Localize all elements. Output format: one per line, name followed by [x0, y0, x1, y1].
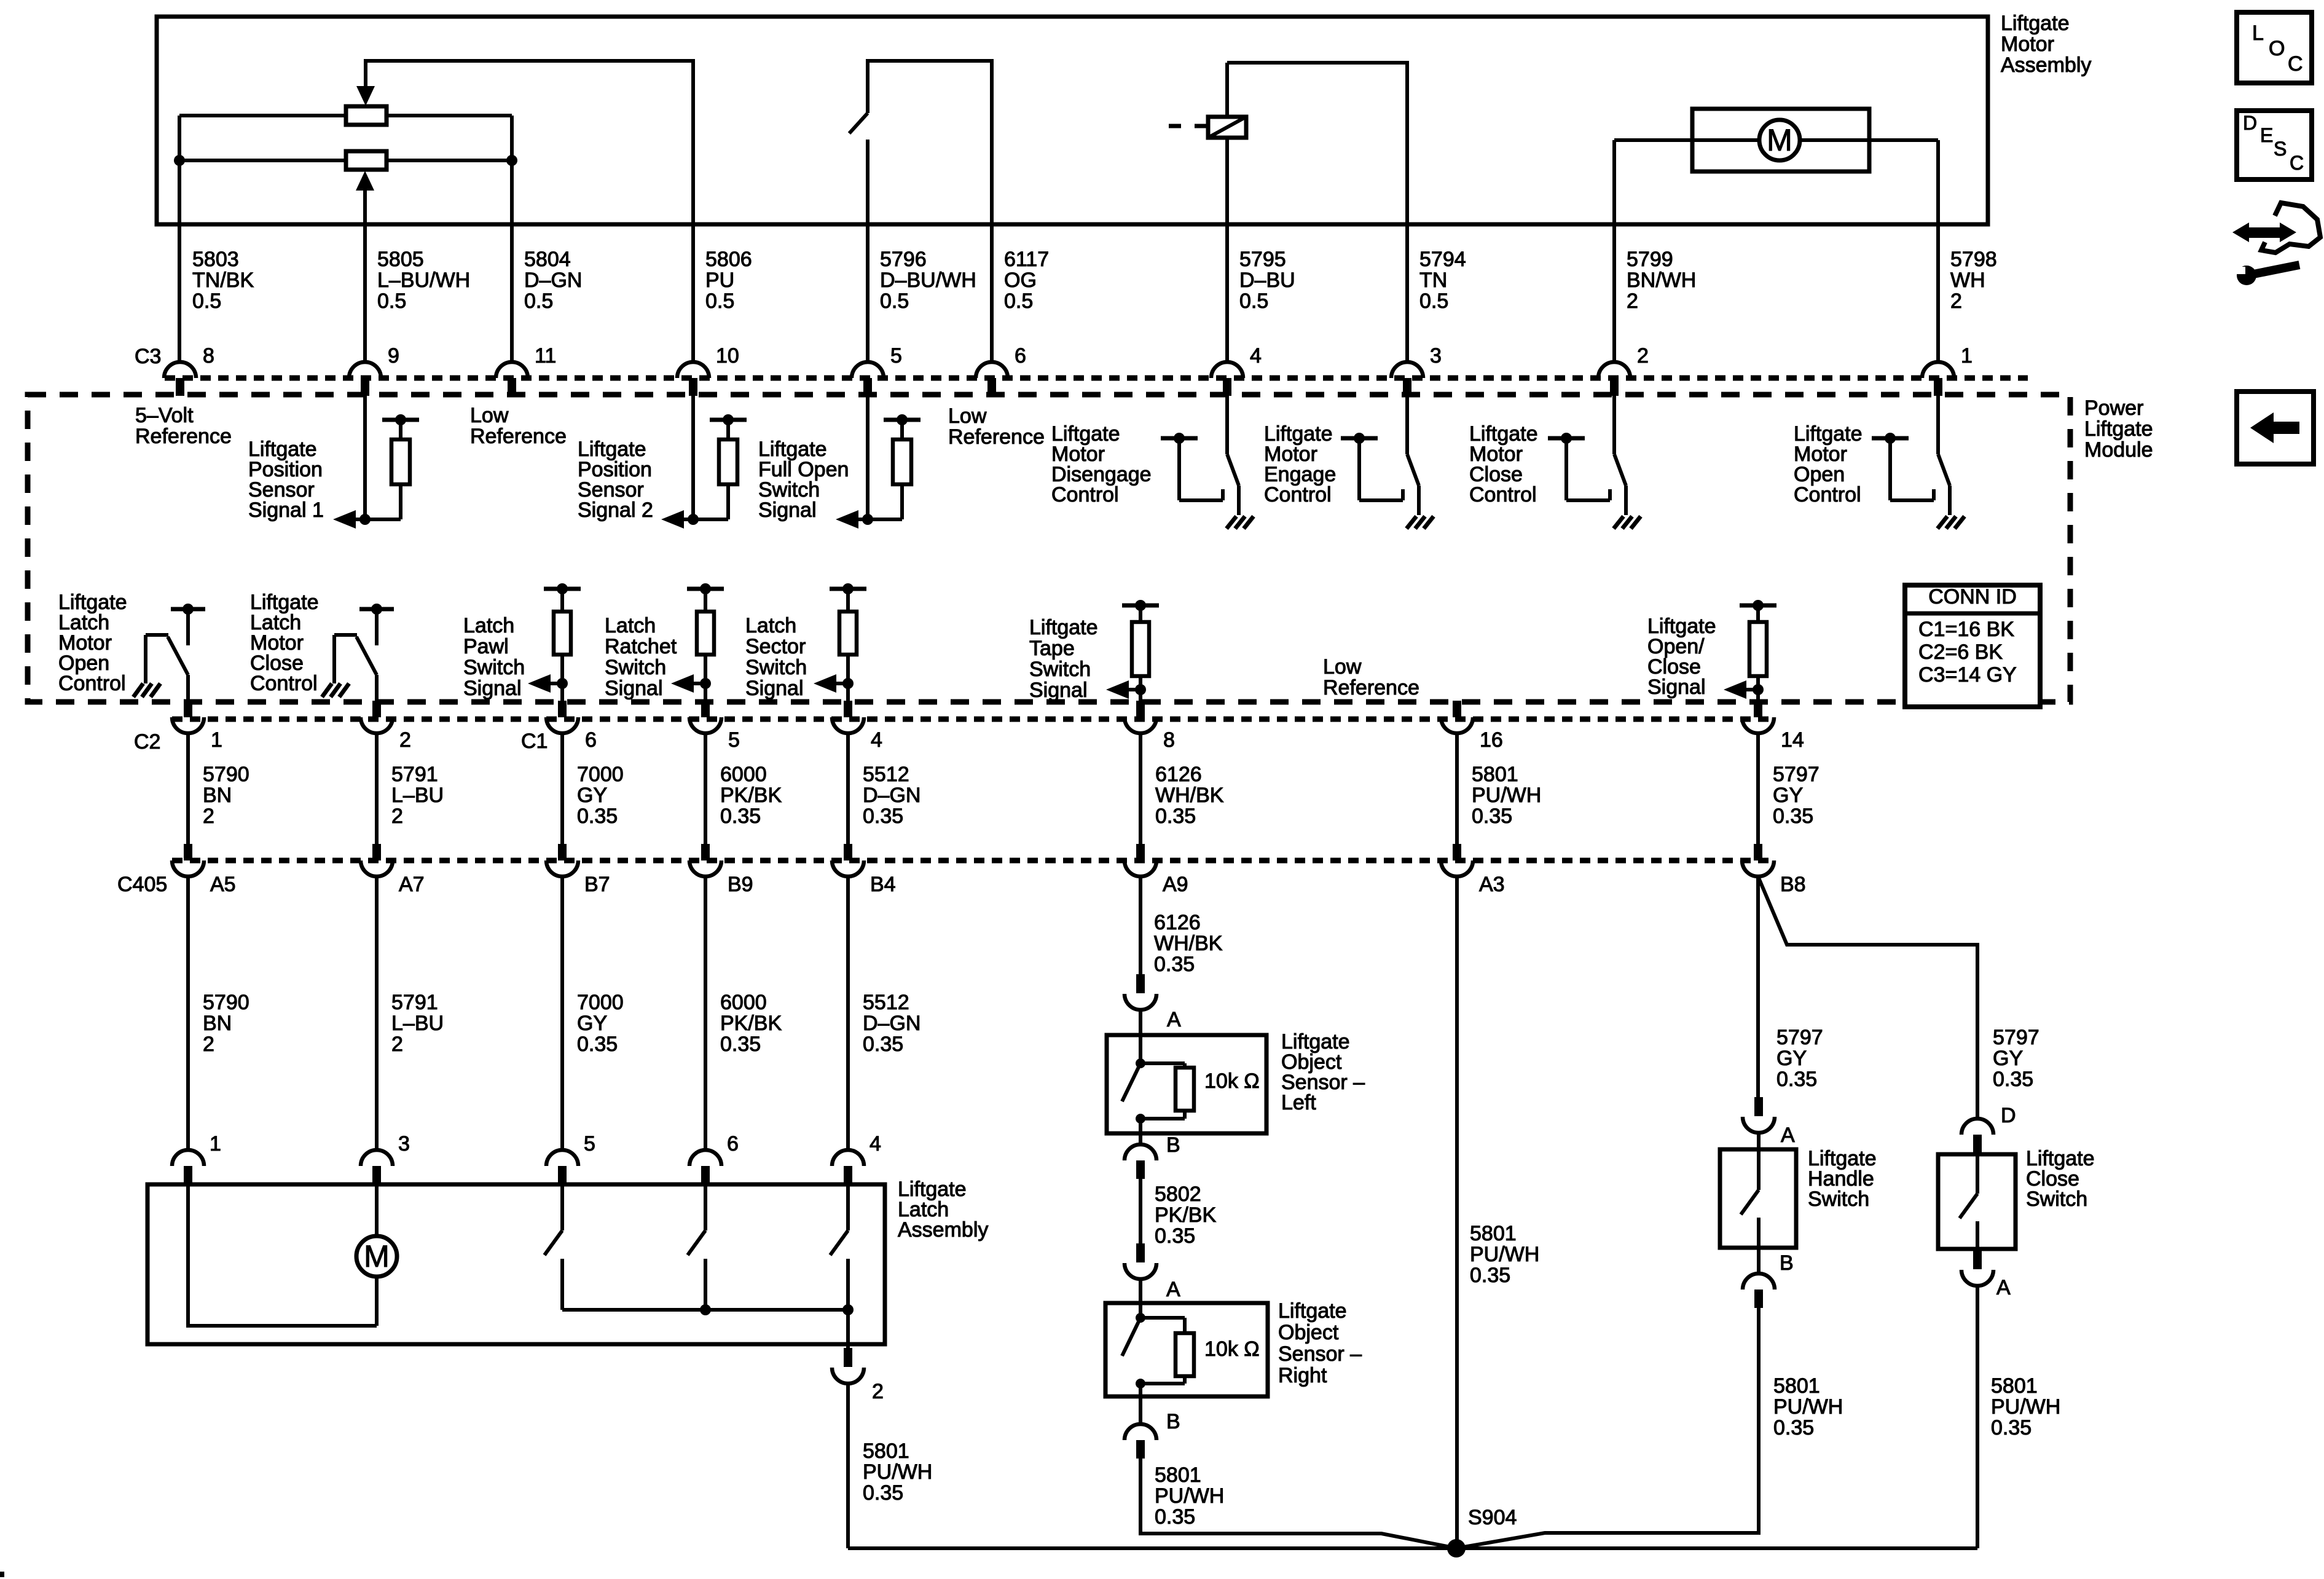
svg-text:CONN ID: CONN ID — [1928, 585, 2017, 608]
svg-text:PowerLiftgateModule: PowerLiftgateModule — [2084, 396, 2153, 462]
svg-text:10k Ω: 10k Ω — [1204, 1069, 1260, 1093]
svg-text:A7: A7 — [399, 873, 425, 896]
svg-text:B4: B4 — [870, 873, 896, 896]
svg-text:B: B — [1780, 1251, 1794, 1275]
svg-text:14: 14 — [1781, 728, 1804, 752]
svg-text:8: 8 — [1163, 728, 1175, 752]
svg-text:B: B — [1166, 1133, 1180, 1157]
svg-text:M: M — [1767, 123, 1792, 157]
svg-text:C: C — [2288, 52, 2303, 76]
svg-text:A: A — [1996, 1276, 2011, 1299]
svg-text:4: 4 — [871, 728, 882, 752]
svg-text:9: 9 — [388, 344, 399, 368]
svg-text:1: 1 — [211, 728, 222, 752]
svg-text:6: 6 — [585, 728, 597, 752]
svg-text:C1: C1 — [521, 730, 548, 753]
svg-text:10k Ω: 10k Ω — [1204, 1337, 1260, 1361]
svg-text:1: 1 — [1961, 344, 1973, 368]
svg-text:C3: C3 — [135, 345, 161, 368]
svg-text:6: 6 — [1015, 344, 1026, 368]
svg-text:8: 8 — [203, 344, 214, 368]
svg-text:3: 3 — [1430, 344, 1442, 368]
svg-text:B9: B9 — [728, 873, 753, 896]
svg-text:4: 4 — [1250, 344, 1262, 368]
svg-text:1: 1 — [210, 1132, 221, 1156]
svg-text:S: S — [2274, 138, 2287, 160]
svg-text:16: 16 — [1480, 728, 1503, 752]
svg-text:A: A — [1167, 1008, 1181, 1031]
svg-text:A5: A5 — [210, 873, 236, 896]
svg-text:E: E — [2260, 124, 2273, 146]
svg-text:5: 5 — [890, 344, 902, 368]
svg-text:10: 10 — [716, 344, 739, 368]
svg-text:B: B — [1166, 1410, 1180, 1433]
svg-text:4: 4 — [870, 1132, 881, 1156]
svg-text:LiftgatePositionSensorSignal 2: LiftgatePositionSensorSignal 2 — [578, 438, 653, 522]
svg-text:2: 2 — [399, 728, 411, 752]
svg-text:D: D — [2001, 1104, 2016, 1127]
svg-text:A3: A3 — [1479, 873, 1505, 896]
svg-text:C405: C405 — [117, 873, 167, 896]
svg-text:C: C — [2290, 152, 2304, 174]
svg-text:6: 6 — [727, 1132, 739, 1156]
svg-text:11: 11 — [535, 344, 556, 368]
svg-text:LiftgatePositionSensorSignal 1: LiftgatePositionSensorSignal 1 — [248, 438, 324, 522]
svg-text:S904: S904 — [1468, 1506, 1517, 1529]
svg-text:A: A — [1166, 1278, 1180, 1301]
svg-text:C2: C2 — [134, 730, 160, 754]
svg-text:D: D — [2243, 112, 2257, 134]
svg-text:2: 2 — [1637, 344, 1649, 368]
svg-text:5: 5 — [728, 728, 740, 752]
svg-text:2: 2 — [872, 1380, 884, 1403]
svg-text:C1=16 BKC2=6 BKC3=14 GY: C1=16 BKC2=6 BKC3=14 GY — [1918, 618, 2017, 687]
svg-text:B8: B8 — [1780, 873, 1806, 896]
svg-text:B7: B7 — [584, 873, 610, 896]
svg-text:A9: A9 — [1163, 873, 1188, 896]
svg-text:3: 3 — [398, 1132, 410, 1156]
svg-text:LiftgateMotorEngageControl: LiftgateMotorEngageControl — [1264, 422, 1336, 506]
svg-text:O: O — [2269, 37, 2285, 60]
svg-text:A: A — [1781, 1124, 1795, 1147]
svg-text:L: L — [2252, 22, 2264, 45]
svg-text:M: M — [364, 1239, 390, 1274]
svg-text:5: 5 — [584, 1132, 595, 1156]
svg-text:LiftgateHandleSwitch: LiftgateHandleSwitch — [1808, 1147, 1877, 1211]
